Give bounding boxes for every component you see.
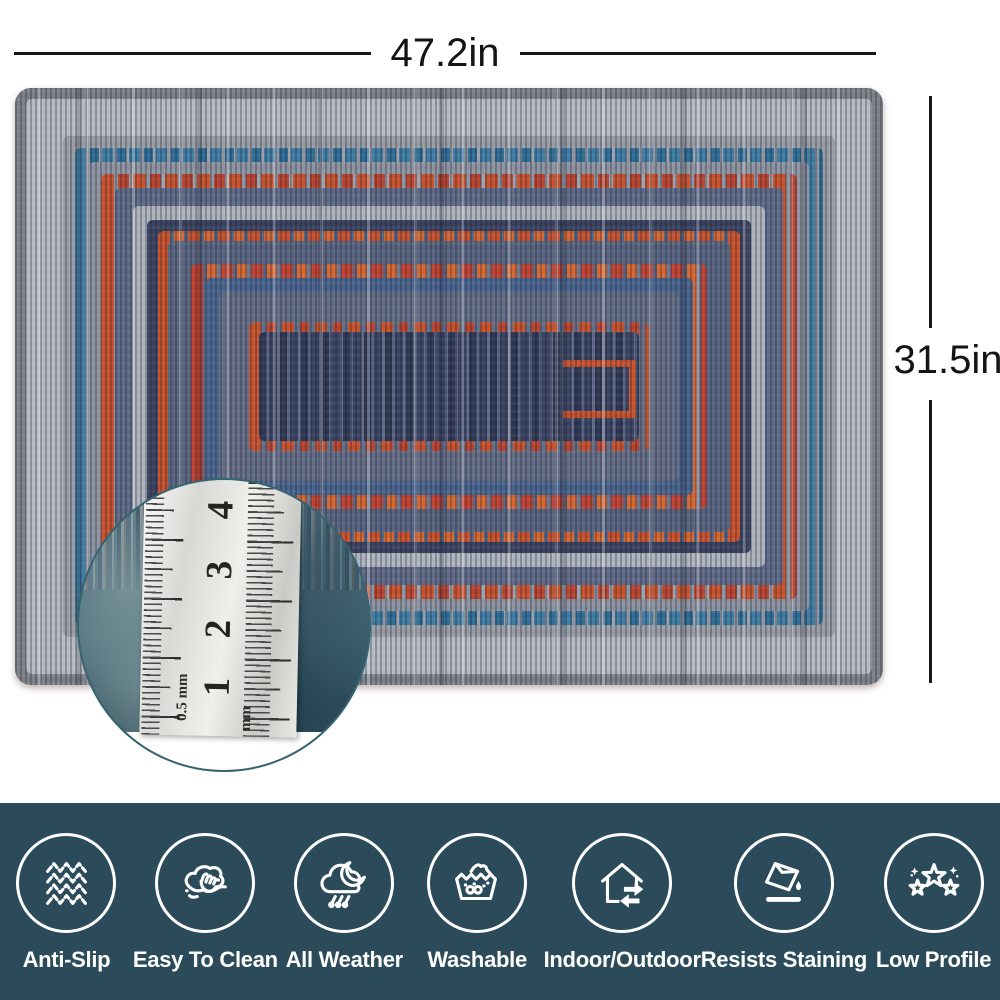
feature-circle [884,833,984,933]
indoor-outdoor-icon [591,852,653,914]
width-dimension-label: 47.2in [391,33,500,73]
feature-easy-to-clean: Easy To Clean [133,833,278,1000]
feature-label: Washable [411,947,544,973]
dimension-line-upper [929,96,932,328]
feature-label: All Weather [278,947,411,973]
wipe-clean-icon [174,852,236,914]
height-dimension-label: 31.5in [893,340,1000,380]
feature-circle [155,833,255,933]
washable-icon [446,852,508,914]
feature-circle [294,833,394,933]
ruler: 4 3 2 1 0.5 mm mm [139,478,301,738]
ruler-number: 4 [199,500,242,519]
ruler-ticks-right [243,478,294,737]
ruler-unit-label: 0.5 mm [174,673,192,721]
feature-indoor-outdoor: Indoor/Outdoor [544,833,701,1000]
ruler-number: 3 [198,560,241,579]
anti-slip-icon [35,852,97,914]
dimension-line-lower [929,400,932,683]
resists-staining-icon [753,852,815,914]
feature-label: Easy To Clean [133,947,278,973]
feature-washable: Washable [411,833,544,1000]
feature-label: Low Profile [867,947,1000,973]
dimension-line-right [520,52,877,55]
low-profile-icon [903,852,965,914]
dimension-line-left [14,52,371,55]
width-dimension: 47.2in [14,33,876,73]
height-dimension: 31.5in [893,96,1000,686]
feature-label: Indoor/Outdoor [544,947,701,973]
ruler-number: 2 [197,619,240,638]
all-weather-icon [313,852,375,914]
pile-height-magnifier: 4 3 2 1 0.5 mm mm [77,478,371,772]
feature-resists-staining: Resists Staining [701,833,867,1000]
feature-circle [16,833,116,933]
ruler-number: 1 [196,677,239,696]
ruler-unit-label: mm [238,706,256,731]
feature-label: Resists Staining [701,947,867,973]
feature-low-profile: Low Profile [867,833,1000,1000]
feature-label: Anti-Slip [0,947,133,973]
feature-circle [427,833,527,933]
feature-circle [734,833,834,933]
magnifier-background [79,732,369,770]
feature-anti-slip: Anti-Slip [0,833,133,1000]
feature-bar: Anti-Slip Easy To Clean All Weather [0,803,1000,1000]
feature-all-weather: All Weather [278,833,411,1000]
feature-circle [572,833,672,933]
